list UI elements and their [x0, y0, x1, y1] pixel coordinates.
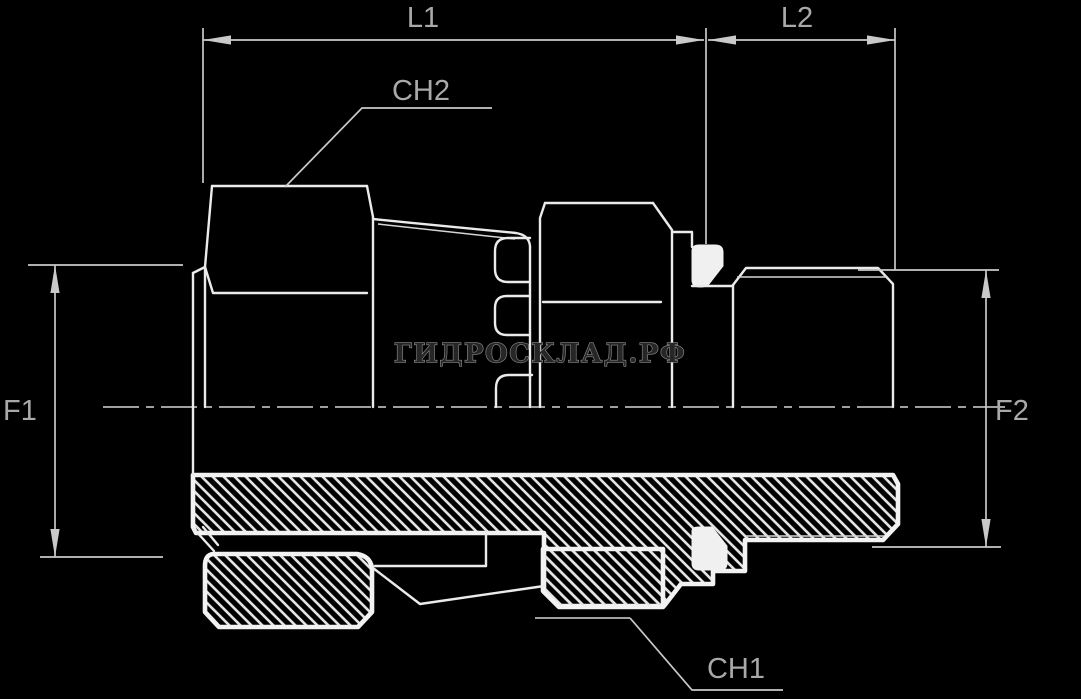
label-f1: F1 — [3, 395, 37, 427]
drawing-canvas: L1 L2 CH2 F1 F2 CH1 ГИДРОСКЛАД.РФ — [0, 0, 1081, 699]
label-f2: F2 — [995, 395, 1029, 427]
watermark-text: ГИДРОСКЛАД.РФ — [394, 339, 686, 369]
label-l1: L1 — [407, 2, 439, 34]
section-left-hex-block — [205, 554, 372, 627]
section-second-hex-block — [543, 549, 663, 607]
hydraulic-adapter-drawing: L1 L2 CH2 F1 F2 CH1 ГИДРОСКЛАД.РФ — [0, 0, 1081, 699]
label-ch1: CH1 — [707, 653, 765, 685]
label-l2: L2 — [781, 2, 813, 34]
label-ch2: CH2 — [392, 75, 450, 107]
